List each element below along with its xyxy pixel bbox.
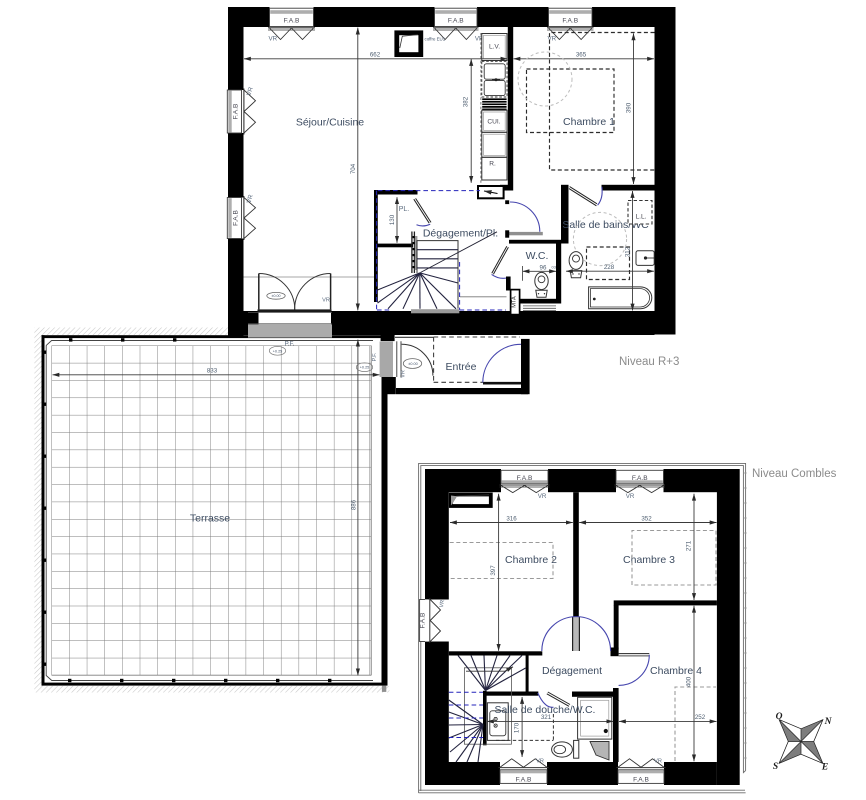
svg-text:VR: VR	[626, 493, 635, 500]
svg-text:252: 252	[695, 714, 706, 721]
svg-text:VR: VR	[401, 370, 407, 378]
svg-text:F.A.B: F.A.B	[516, 776, 532, 783]
svg-text:O: O	[776, 712, 783, 722]
svg-text:P.F.: P.F.	[285, 340, 295, 347]
svg-text:±0.00: ±0.00	[272, 294, 281, 298]
svg-text:96: 96	[540, 264, 547, 271]
svg-text:L.L.: L.L.	[636, 214, 647, 221]
svg-text:VR: VR	[654, 759, 662, 765]
svg-text:N: N	[824, 717, 833, 727]
svg-text:03: 03	[552, 264, 557, 269]
svg-text:P.F.: P.F.	[372, 352, 378, 361]
svg-text:F.A.B: F.A.B	[233, 210, 240, 226]
svg-text:Dégagement: Dégagement	[542, 665, 602, 677]
svg-text:F.A.B: F.A.B	[633, 776, 649, 783]
svg-text:Chambre 2: Chambre 2	[505, 554, 557, 566]
svg-text:PL.: PL.	[399, 206, 410, 213]
svg-text:271: 271	[685, 540, 692, 551]
svg-text:S: S	[773, 762, 778, 772]
svg-text:170: 170	[514, 722, 521, 733]
svg-text:390: 390	[625, 102, 632, 113]
svg-text:+0.25: +0.25	[273, 349, 283, 353]
svg-text:coffre EU1: coffre EU1	[425, 37, 446, 42]
svg-text:L.V.: L.V.	[489, 44, 500, 51]
svg-text:Séjour/Cuisine: Séjour/Cuisine	[296, 117, 364, 129]
svg-text:228: 228	[604, 264, 615, 271]
svg-text:Terrasse: Terrasse	[190, 513, 230, 525]
svg-text:352: 352	[641, 515, 652, 522]
svg-text:Niveau Combles: Niveau Combles	[752, 468, 837, 480]
svg-text:Chambre 3: Chambre 3	[623, 554, 675, 566]
svg-text:E: E	[821, 763, 828, 773]
svg-text:400: 400	[685, 676, 692, 687]
svg-text:VR: VR	[548, 36, 557, 43]
svg-text:Chambre 1: Chambre 1	[563, 116, 615, 128]
svg-text:VR: VR	[269, 36, 278, 43]
svg-text:F.A.B: F.A.B	[284, 17, 300, 24]
svg-text:312: 312	[625, 246, 632, 257]
svg-text:CUI.: CUI.	[487, 118, 500, 125]
svg-text:F.A.B: F.A.B	[233, 103, 240, 119]
svg-text:886: 886	[350, 499, 357, 510]
svg-text:Niveau R+3: Niveau R+3	[619, 356, 679, 368]
svg-text:316: 316	[506, 515, 517, 522]
svg-text:365: 365	[576, 51, 587, 58]
svg-text:F.A.B: F.A.B	[562, 17, 578, 24]
svg-text:R.: R.	[489, 161, 496, 168]
svg-text:MTA: MTA	[511, 296, 517, 308]
svg-text:+0.25: +0.25	[360, 366, 370, 370]
svg-text:397: 397	[490, 565, 497, 576]
svg-text:VR: VR	[536, 759, 544, 765]
svg-text:±0.00: ±0.00	[408, 362, 417, 366]
svg-text:704: 704	[350, 163, 357, 174]
svg-text:130: 130	[389, 214, 396, 225]
svg-text:382: 382	[462, 96, 469, 107]
svg-text:VR: VR	[322, 297, 330, 303]
svg-text:Entrée: Entrée	[446, 361, 477, 373]
svg-text:833: 833	[207, 367, 218, 374]
svg-text:F.A.B: F.A.B	[448, 17, 464, 24]
svg-text:VR: VR	[538, 493, 547, 500]
svg-text:F.A.B: F.A.B	[419, 612, 426, 628]
svg-text:W.C.: W.C.	[526, 250, 549, 262]
svg-text:662: 662	[370, 52, 381, 59]
svg-text:321: 321	[541, 714, 552, 721]
